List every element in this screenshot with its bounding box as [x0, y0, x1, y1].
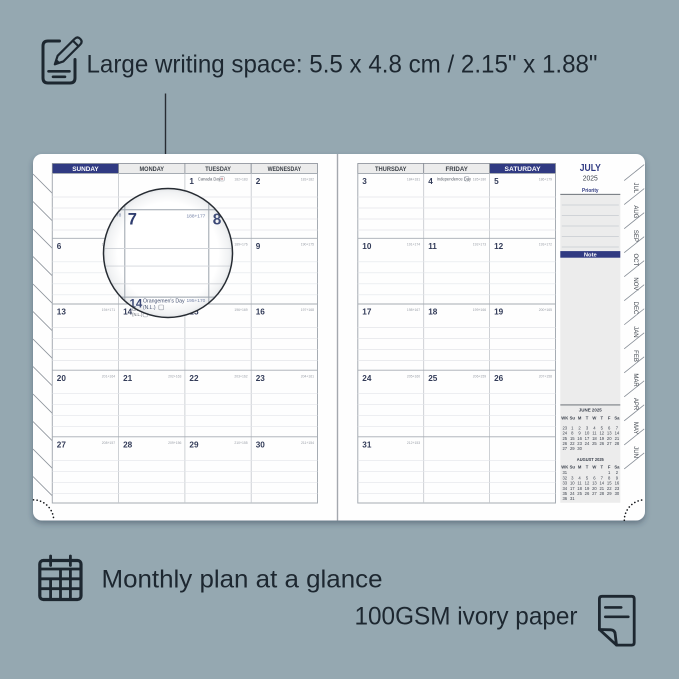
svg-text:31: 31 — [570, 496, 575, 501]
svg-text:182+183: 182+183 — [234, 178, 247, 182]
svg-text:T: T — [601, 416, 604, 421]
svg-text:20: 20 — [57, 374, 67, 383]
svg-text:F: F — [608, 416, 611, 421]
svg-text:9: 9 — [256, 242, 261, 251]
svg-text:30: 30 — [256, 441, 266, 450]
svg-text:Note: Note — [584, 252, 598, 258]
svg-text:W: W — [592, 465, 596, 470]
svg-text:TUESDAY: TUESDAY — [205, 166, 231, 173]
svg-text:W: W — [592, 416, 596, 421]
svg-text:Priority: Priority — [582, 188, 599, 194]
svg-text:211+154: 211+154 — [301, 441, 314, 445]
svg-text:196+169: 196+169 — [234, 308, 247, 312]
svg-text:JUNE 2025: JUNE 2025 — [579, 408, 602, 414]
svg-text:17: 17 — [362, 308, 372, 317]
svg-text:207+158: 207+158 — [539, 374, 552, 378]
svg-text:M: M — [578, 416, 582, 421]
svg-text:205+160: 205+160 — [407, 374, 420, 378]
svg-text:SATURDAY: SATURDAY — [505, 166, 541, 173]
svg-text:27: 27 — [562, 446, 567, 451]
svg-text:27: 27 — [592, 491, 597, 496]
svg-text:Large writing space: 5.5 x 4.8: Large writing space: 5.5 x 4.8 cm / 2.15… — [87, 51, 598, 79]
svg-text:210+155: 210+155 — [234, 441, 247, 445]
svg-text:Su: Su — [570, 416, 576, 421]
svg-text:197+168: 197+168 — [301, 308, 314, 312]
svg-text:F: F — [608, 465, 611, 470]
svg-text:185+180: 185+180 — [473, 178, 486, 182]
svg-text:189+176: 189+176 — [234, 243, 247, 247]
svg-text:28: 28 — [123, 441, 133, 450]
svg-text:21: 21 — [123, 374, 133, 383]
svg-text:194+171: 194+171 — [102, 308, 115, 312]
svg-text:(N.L.): (N.L.) — [132, 312, 143, 317]
svg-text:30: 30 — [615, 491, 620, 496]
svg-text:202+163: 202+163 — [168, 374, 181, 378]
svg-text:Canada Day: Canada Day — [198, 176, 222, 181]
svg-text:MONDAY: MONDAY — [140, 166, 165, 173]
svg-text:190+175: 190+175 — [301, 243, 314, 247]
svg-text:Sa: Sa — [614, 465, 620, 470]
svg-text:27: 27 — [57, 441, 67, 450]
svg-text:WK: WK — [561, 416, 568, 421]
svg-text:200+165: 200+165 — [539, 308, 552, 312]
svg-text:199+166: 199+166 — [473, 308, 486, 312]
svg-text:AUG: AUG — [632, 205, 638, 218]
svg-text:APR: APR — [632, 398, 638, 411]
svg-text:29: 29 — [189, 441, 199, 450]
svg-text:22: 22 — [189, 374, 199, 383]
svg-text:M: M — [578, 465, 582, 470]
svg-text:26: 26 — [494, 374, 504, 383]
svg-text:T: T — [601, 465, 604, 470]
svg-text:25: 25 — [592, 441, 597, 446]
svg-text:WK: WK — [561, 465, 568, 470]
svg-text:13: 13 — [57, 308, 67, 317]
svg-text:MAY: MAY — [632, 422, 638, 435]
svg-text:27: 27 — [607, 441, 612, 446]
svg-text:JUL: JUL — [632, 182, 638, 193]
svg-text:12: 12 — [494, 242, 504, 251]
svg-text:186+179: 186+179 — [539, 178, 552, 182]
svg-text:184+181: 184+181 — [407, 178, 420, 182]
svg-text:Sa: Sa — [614, 416, 620, 421]
svg-text:191+174: 191+174 — [407, 243, 420, 247]
svg-text:Monthly plan at a glance: Monthly plan at a glance — [102, 566, 383, 594]
svg-text:FEB: FEB — [632, 350, 638, 362]
svg-text:16: 16 — [256, 308, 266, 317]
svg-text:OCT: OCT — [632, 254, 638, 267]
svg-text:23: 23 — [256, 374, 266, 383]
svg-text:28: 28 — [615, 441, 620, 446]
svg-text:18: 18 — [428, 308, 438, 317]
svg-text:100GSM ivory paper: 100GSM ivory paper — [355, 603, 578, 631]
svg-text:Su: Su — [570, 465, 576, 470]
svg-text:1: 1 — [189, 177, 194, 186]
svg-text:28: 28 — [599, 491, 604, 496]
svg-text:WEDNESDAY: WEDNESDAY — [268, 166, 302, 173]
svg-text:19: 19 — [494, 308, 504, 317]
svg-text:SUNDAY: SUNDAY — [72, 166, 99, 173]
svg-text:JUN: JUN — [632, 446, 638, 458]
svg-text:24: 24 — [585, 441, 590, 446]
svg-text:36: 36 — [562, 496, 567, 501]
svg-text:3: 3 — [362, 177, 367, 186]
svg-text:T: T — [586, 465, 589, 470]
svg-text:26: 26 — [599, 441, 604, 446]
svg-text:4: 4 — [428, 177, 433, 186]
svg-text:5: 5 — [494, 177, 499, 186]
svg-text:29: 29 — [570, 446, 575, 451]
svg-text:DEC: DEC — [632, 302, 638, 315]
svg-text:209+156: 209+156 — [168, 441, 181, 445]
svg-text:201+164: 201+164 — [102, 374, 115, 378]
svg-text:10: 10 — [362, 242, 372, 251]
svg-text:25: 25 — [428, 374, 438, 383]
svg-text:25: 25 — [577, 491, 582, 496]
svg-text:193+172: 193+172 — [539, 243, 552, 247]
svg-text:JAN: JAN — [632, 326, 638, 337]
svg-text:6: 6 — [57, 242, 62, 251]
svg-text:183+182: 183+182 — [301, 178, 314, 182]
svg-text:T: T — [586, 416, 589, 421]
svg-text:SEP: SEP — [632, 230, 638, 242]
svg-text:11: 11 — [428, 242, 437, 251]
svg-text:2: 2 — [256, 177, 261, 186]
svg-text:192+173: 192+173 — [473, 243, 486, 247]
svg-text:AUGUST 2025: AUGUST 2025 — [577, 457, 604, 463]
svg-text:FRIDAY: FRIDAY — [446, 166, 469, 173]
svg-text:198+167: 198+167 — [407, 308, 420, 312]
svg-text:Independence Day: Independence Day — [437, 176, 472, 181]
svg-text:2025: 2025 — [583, 173, 598, 182]
svg-text:208+157: 208+157 — [102, 441, 115, 445]
svg-text:24: 24 — [362, 374, 372, 383]
svg-text:31: 31 — [362, 441, 372, 450]
svg-text:212+153: 212+153 — [407, 441, 420, 445]
svg-text:204+161: 204+161 — [301, 374, 314, 378]
svg-text:MAR: MAR — [632, 373, 638, 387]
svg-text:29: 29 — [607, 491, 612, 496]
svg-text:26: 26 — [585, 491, 590, 496]
svg-text:NOV: NOV — [632, 277, 638, 290]
svg-text:THURSDAY: THURSDAY — [375, 166, 407, 173]
svg-text:206+159: 206+159 — [473, 374, 486, 378]
svg-text:203+162: 203+162 — [234, 374, 247, 378]
svg-text:30: 30 — [577, 446, 582, 451]
